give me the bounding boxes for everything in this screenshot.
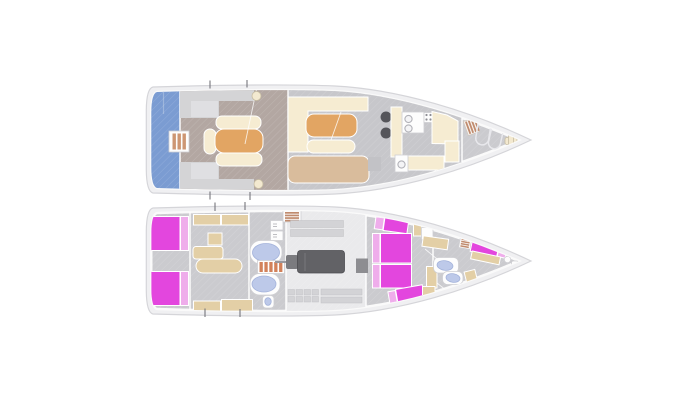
generator-box: [356, 259, 368, 274]
aft-seat-1: [193, 247, 223, 260]
fwd-berth-double-starboard: [381, 265, 412, 289]
aft-dresser: [208, 233, 222, 245]
cockpit-bench-bottom: [216, 153, 262, 166]
galley-counter-corner: [445, 141, 459, 162]
winch-port: [252, 92, 261, 101]
aft-berth-starboard: [151, 272, 180, 306]
washbasin-forward-1: [434, 258, 459, 274]
upper-deck-plan: [146, 80, 536, 200]
saloon-bench: [307, 140, 355, 153]
aft-berth-port: [151, 217, 180, 251]
aft-cabinet-top-1: [194, 215, 221, 226]
yacht-deck-plans: [0, 0, 680, 400]
aft-berth-starboard-pillows: [181, 272, 189, 306]
saloon-table: [306, 114, 357, 137]
toilet: [263, 296, 275, 309]
fwd-berth-double-port: [381, 234, 412, 264]
fwd-berth-double-port-pillows: [373, 234, 381, 264]
boarding-ladder: [169, 131, 189, 152]
cockpit-seat-pad: [204, 129, 216, 154]
cockpit-bench-starboard-cushion: [191, 163, 218, 179]
saloon-sofa: [288, 156, 369, 183]
saloon-cabinet: [368, 157, 381, 171]
lower-deck-plan: [146, 202, 536, 317]
galley-counter-aft: [407, 156, 444, 170]
engine-room-shelf-1: [291, 221, 344, 228]
bathtub-starboard: [250, 274, 280, 296]
bar-stool-port: [381, 112, 392, 123]
winch-starboard: [254, 180, 263, 189]
aft-seat-2: [196, 259, 242, 273]
galley-counter-inner: [391, 107, 402, 157]
cockpit-bench-port-cushion: [191, 101, 218, 117]
bar-stool-starboard: [381, 128, 392, 139]
engine-room-shelf-2: [291, 230, 344, 237]
cockpit-bench-top: [216, 116, 261, 129]
gearbox: [286, 255, 298, 269]
aft-cabinet-bottom-1: [194, 301, 221, 312]
aft-cabinet-top-2: [222, 215, 249, 226]
aft-berth-port-pillows: [181, 217, 189, 251]
galley-sink: [395, 155, 408, 172]
fwd-berth-double-starboard-pillows: [373, 265, 381, 289]
washbasin-forward-2: [443, 272, 464, 285]
aft-cabinet-bottom-2: [222, 300, 253, 312]
deck-plan-canvas: [0, 0, 680, 400]
cockpit-sunpad: [215, 129, 263, 153]
